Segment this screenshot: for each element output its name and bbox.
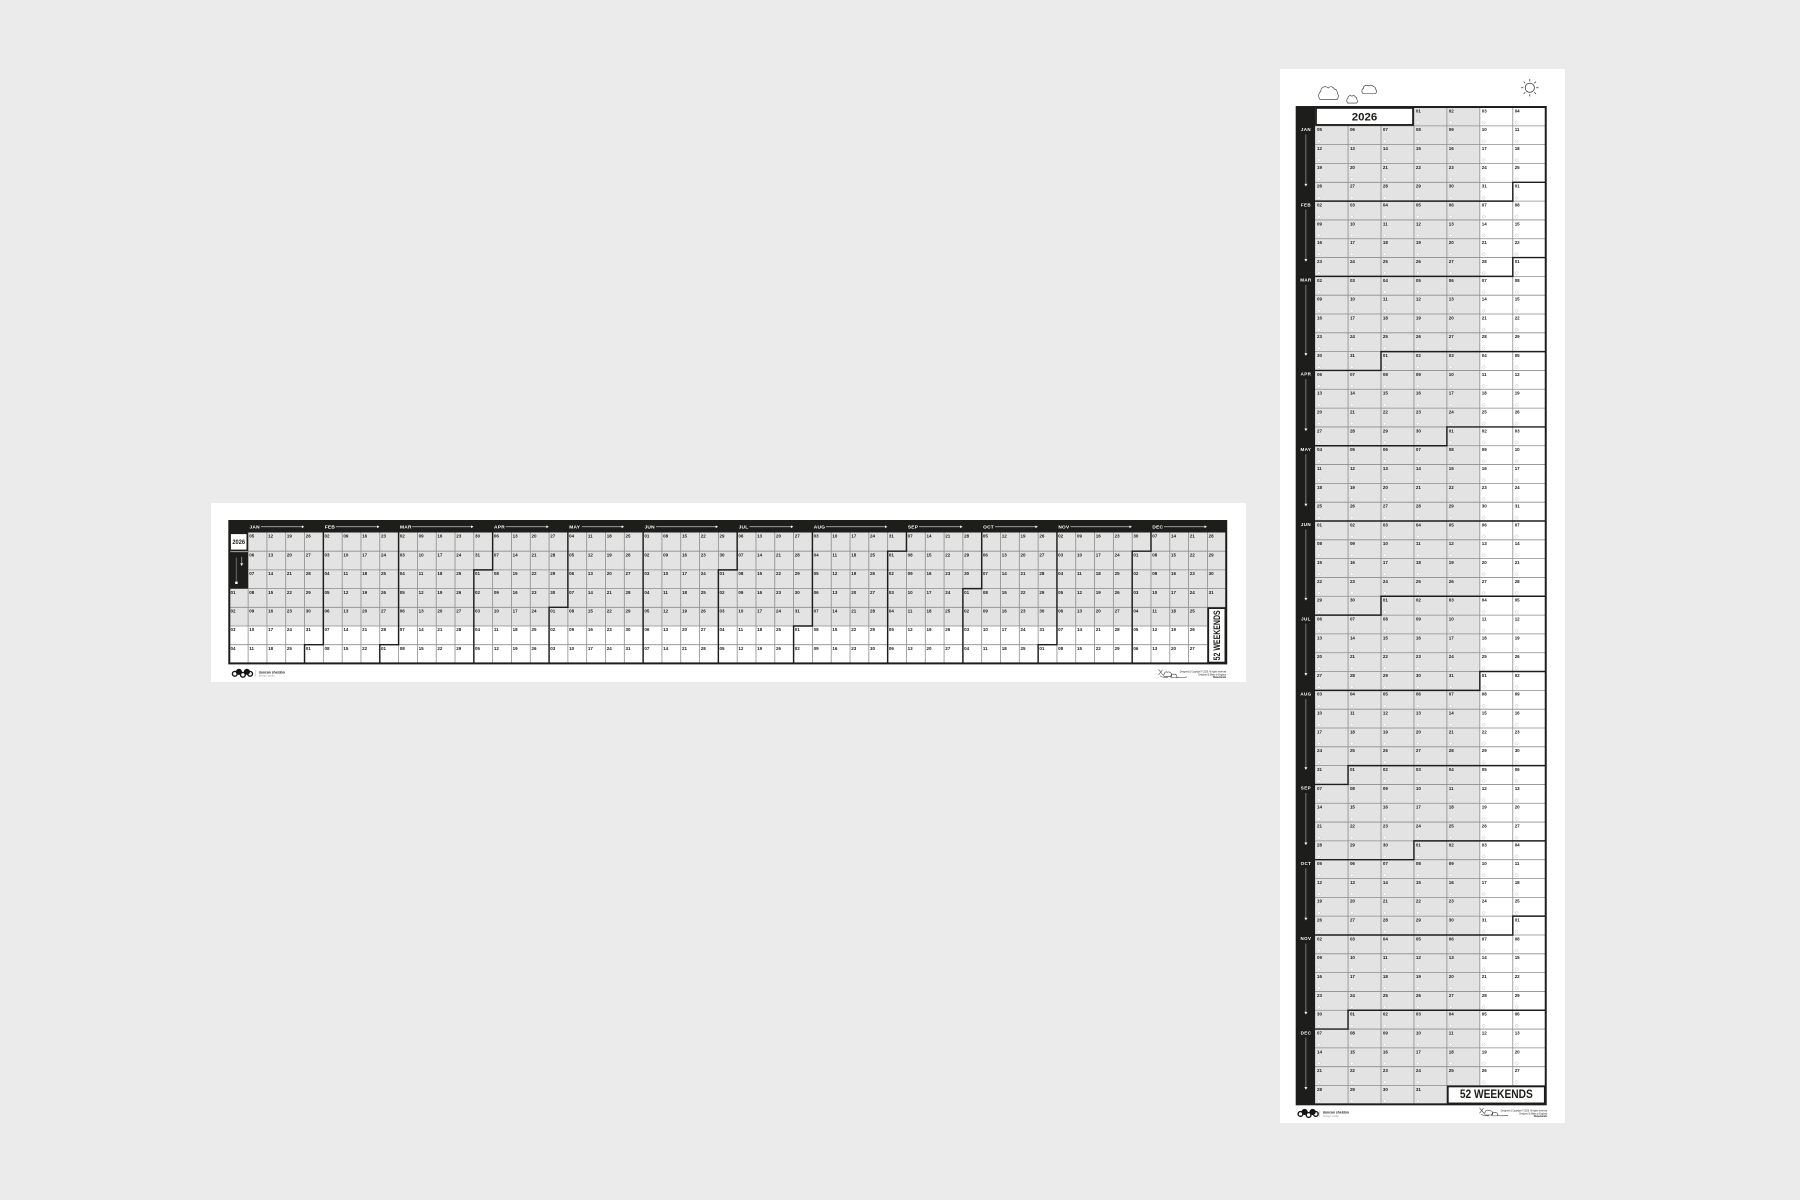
svg-text:17: 17 <box>268 627 274 632</box>
svg-text:10: 10 <box>738 609 744 614</box>
svg-text:21: 21 <box>682 646 688 651</box>
svg-text:07: 07 <box>1481 936 1486 941</box>
svg-text:25: 25 <box>1021 646 1027 651</box>
svg-text:03: 03 <box>644 571 650 576</box>
svg-text:JUL: JUL <box>1301 616 1311 621</box>
svg-text:11: 11 <box>1382 297 1387 302</box>
svg-text:25: 25 <box>945 609 951 614</box>
svg-text:30: 30 <box>1514 748 1519 753</box>
svg-text:21: 21 <box>851 609 857 614</box>
svg-text:16: 16 <box>1002 609 1008 614</box>
svg-text:09: 09 <box>983 609 989 614</box>
svg-text:23: 23 <box>531 590 537 595</box>
svg-text:19: 19 <box>362 590 368 595</box>
svg-text:11: 11 <box>1514 861 1519 866</box>
svg-text:10: 10 <box>419 552 425 557</box>
svg-text:10: 10 <box>1448 372 1453 377</box>
svg-text:11: 11 <box>419 571 424 576</box>
svg-text:11: 11 <box>832 552 837 557</box>
svg-text:28: 28 <box>1481 259 1486 264</box>
svg-text:16: 16 <box>1382 805 1387 810</box>
svg-text:10: 10 <box>569 646 575 651</box>
svg-text:09: 09 <box>1448 127 1453 132</box>
svg-text:29: 29 <box>550 571 556 576</box>
svg-text:22: 22 <box>1190 552 1196 557</box>
svg-text:01: 01 <box>1514 918 1519 923</box>
svg-text:24: 24 <box>1448 409 1453 414</box>
svg-text:25: 25 <box>626 534 632 539</box>
svg-text:18: 18 <box>851 552 857 557</box>
svg-text:03: 03 <box>1349 936 1354 941</box>
svg-text:07: 07 <box>1349 616 1354 621</box>
svg-text:MAR: MAR <box>400 525 412 531</box>
svg-text:01: 01 <box>1448 428 1453 433</box>
svg-text:11: 11 <box>663 590 668 595</box>
svg-text:09: 09 <box>663 552 669 557</box>
svg-text:30: 30 <box>1382 1087 1387 1092</box>
svg-text:12: 12 <box>1415 297 1420 302</box>
svg-text:09: 09 <box>738 590 744 595</box>
svg-text:26: 26 <box>1514 654 1519 659</box>
svg-text:07: 07 <box>569 590 575 595</box>
svg-text:09: 09 <box>569 627 575 632</box>
svg-text:28: 28 <box>1115 627 1121 632</box>
svg-text:19: 19 <box>1316 899 1321 904</box>
svg-text:10: 10 <box>1349 221 1354 226</box>
svg-text:18: 18 <box>513 627 519 632</box>
svg-text:11: 11 <box>738 627 743 632</box>
svg-text:08: 08 <box>1382 616 1387 621</box>
svg-text:03: 03 <box>475 609 481 614</box>
svg-text:06: 06 <box>1349 861 1354 866</box>
svg-text:25: 25 <box>1190 609 1196 614</box>
svg-text:29: 29 <box>1415 184 1420 189</box>
svg-text:22: 22 <box>1448 485 1453 490</box>
svg-text:12: 12 <box>1481 786 1486 791</box>
svg-text:09: 09 <box>249 609 255 614</box>
svg-text:07: 07 <box>1349 372 1354 377</box>
svg-text:21: 21 <box>437 627 443 632</box>
svg-text:31: 31 <box>1481 184 1486 189</box>
svg-text:09: 09 <box>1316 955 1321 960</box>
svg-text:23: 23 <box>1316 259 1321 264</box>
svg-text:02: 02 <box>325 534 331 539</box>
svg-text:21: 21 <box>1316 1068 1321 1073</box>
svg-text:09: 09 <box>343 534 349 539</box>
svg-text:01: 01 <box>795 627 801 632</box>
svg-text:12: 12 <box>1316 880 1321 885</box>
svg-text:08: 08 <box>1316 541 1321 546</box>
svg-text:08: 08 <box>1382 372 1387 377</box>
svg-text:24: 24 <box>1190 590 1196 595</box>
svg-text:21: 21 <box>287 571 293 576</box>
svg-text:29: 29 <box>456 646 462 651</box>
svg-text:29: 29 <box>1514 334 1519 339</box>
svg-text:16: 16 <box>1316 974 1321 979</box>
svg-text:20: 20 <box>851 590 857 595</box>
svg-text:SEP: SEP <box>908 525 919 531</box>
svg-text:15: 15 <box>1382 635 1387 640</box>
svg-text:NOV: NOV <box>1058 525 1070 531</box>
svg-text:01: 01 <box>1415 842 1420 847</box>
svg-text:06: 06 <box>738 534 744 539</box>
svg-text:14: 14 <box>1382 146 1387 151</box>
svg-text:21: 21 <box>531 552 537 557</box>
svg-text:DEC: DEC <box>1152 525 1163 531</box>
svg-text:25: 25 <box>1514 165 1519 170</box>
svg-text:18: 18 <box>1382 240 1387 245</box>
svg-text:24: 24 <box>1514 485 1519 490</box>
svg-text:12: 12 <box>908 627 914 632</box>
svg-text:21: 21 <box>1448 729 1453 734</box>
svg-text:15: 15 <box>832 627 838 632</box>
svg-text:23: 23 <box>1448 899 1453 904</box>
svg-text:16: 16 <box>1514 711 1519 716</box>
svg-text:10: 10 <box>1481 127 1486 132</box>
svg-text:15: 15 <box>1415 880 1420 885</box>
svg-text:04: 04 <box>1382 203 1387 208</box>
svg-text:20: 20 <box>531 534 537 539</box>
svg-text:24: 24 <box>870 534 876 539</box>
svg-text:13: 13 <box>1349 146 1354 151</box>
svg-text:25: 25 <box>1448 1068 1453 1073</box>
svg-text:01: 01 <box>1349 767 1354 772</box>
svg-text:29: 29 <box>1382 673 1387 678</box>
svg-text:03: 03 <box>1349 278 1354 283</box>
svg-text:09: 09 <box>908 571 914 576</box>
svg-text:14: 14 <box>588 590 594 595</box>
svg-text:13: 13 <box>1152 646 1158 651</box>
svg-text:08: 08 <box>1415 127 1420 132</box>
svg-text:08: 08 <box>569 609 575 614</box>
svg-text:21: 21 <box>1514 560 1519 565</box>
svg-text:14: 14 <box>1415 466 1420 471</box>
svg-text:NOV: NOV <box>1300 936 1311 941</box>
svg-text:07: 07 <box>1152 534 1158 539</box>
svg-text:23: 23 <box>287 609 293 614</box>
svg-text:52 WEEKENDS: 52 WEEKENDS <box>1212 610 1223 660</box>
svg-text:19: 19 <box>1448 560 1453 565</box>
svg-text:01: 01 <box>1481 673 1486 678</box>
svg-text:11: 11 <box>1481 616 1486 621</box>
svg-text:05: 05 <box>1415 278 1420 283</box>
svg-text:28: 28 <box>550 552 556 557</box>
svg-text:13: 13 <box>1448 297 1453 302</box>
svg-text:14: 14 <box>663 646 669 651</box>
svg-text:21: 21 <box>1021 571 1027 576</box>
svg-text:MAY: MAY <box>1300 447 1311 452</box>
svg-text:02: 02 <box>795 646 801 651</box>
svg-text:28: 28 <box>1382 918 1387 923</box>
svg-text:03: 03 <box>964 627 970 632</box>
svg-text:04: 04 <box>889 609 895 614</box>
svg-text:14: 14 <box>1514 541 1519 546</box>
svg-text:15: 15 <box>419 646 425 651</box>
svg-text:30: 30 <box>1039 609 1045 614</box>
svg-text:18: 18 <box>1002 646 1008 651</box>
svg-text:18: 18 <box>607 534 613 539</box>
svg-text:17: 17 <box>1481 146 1486 151</box>
svg-text:08: 08 <box>1514 936 1519 941</box>
svg-text:14: 14 <box>1002 571 1008 576</box>
svg-text:06: 06 <box>1133 646 1139 651</box>
svg-text:30: 30 <box>1415 673 1420 678</box>
svg-text:JAN: JAN <box>1300 127 1310 132</box>
svg-text:23: 23 <box>701 552 707 557</box>
svg-text:07: 07 <box>1382 861 1387 866</box>
svg-text:24: 24 <box>607 646 613 651</box>
svg-text:29: 29 <box>1115 646 1121 651</box>
svg-text:05: 05 <box>400 590 406 595</box>
svg-text:07: 07 <box>494 552 500 557</box>
svg-text:28: 28 <box>1481 334 1486 339</box>
svg-text:05: 05 <box>814 571 820 576</box>
svg-text:23: 23 <box>1316 993 1321 998</box>
svg-text:21: 21 <box>1349 409 1354 414</box>
svg-text:52 WEEKENDS: 52 WEEKENDS <box>1459 1087 1532 1101</box>
svg-text:16: 16 <box>1171 571 1177 576</box>
svg-text:15: 15 <box>1349 1049 1354 1054</box>
svg-text:29: 29 <box>1481 748 1486 753</box>
svg-text:06: 06 <box>1382 447 1387 452</box>
svg-text:07: 07 <box>1481 203 1486 208</box>
svg-text:25: 25 <box>1382 259 1387 264</box>
svg-text:25: 25 <box>1481 409 1486 414</box>
svg-text:05: 05 <box>1481 767 1486 772</box>
svg-text:APR: APR <box>494 525 505 531</box>
svg-text:02: 02 <box>1481 428 1486 433</box>
svg-text:10: 10 <box>832 534 838 539</box>
svg-text:07: 07 <box>814 609 820 614</box>
svg-text:JUL: JUL <box>739 525 749 531</box>
svg-text:02: 02 <box>475 590 481 595</box>
svg-text:14: 14 <box>513 552 519 557</box>
svg-text:12: 12 <box>1415 221 1420 226</box>
svg-text:14: 14 <box>419 627 425 632</box>
svg-text:06: 06 <box>889 646 895 651</box>
svg-text:03: 03 <box>1514 428 1519 433</box>
svg-text:26: 26 <box>1190 627 1196 632</box>
svg-text:21: 21 <box>1190 534 1196 539</box>
svg-text:22: 22 <box>1514 974 1519 979</box>
svg-text:01: 01 <box>964 590 970 595</box>
svg-text:21: 21 <box>607 590 613 595</box>
svg-text:27: 27 <box>1316 428 1321 433</box>
svg-text:14: 14 <box>1349 635 1354 640</box>
svg-text:18: 18 <box>926 609 932 614</box>
svg-text:OCT: OCT <box>1300 861 1311 866</box>
svg-text:16: 16 <box>1415 391 1420 396</box>
svg-text:26: 26 <box>701 609 707 614</box>
svg-text:13: 13 <box>1448 221 1453 226</box>
svg-text:17: 17 <box>926 590 932 595</box>
svg-text:30: 30 <box>1349 598 1354 603</box>
svg-text:26: 26 <box>381 590 387 595</box>
svg-text:06: 06 <box>1058 609 1064 614</box>
svg-text:20: 20 <box>1316 654 1321 659</box>
svg-text:02: 02 <box>1316 278 1321 283</box>
svg-text:03: 03 <box>814 534 820 539</box>
svg-text:09: 09 <box>1382 1030 1387 1035</box>
svg-text:22: 22 <box>1514 240 1519 245</box>
svg-text:22: 22 <box>287 590 293 595</box>
svg-text:07: 07 <box>1316 786 1321 791</box>
svg-text:22: 22 <box>701 534 707 539</box>
svg-text:16: 16 <box>832 646 838 651</box>
svg-text:17: 17 <box>588 646 594 651</box>
svg-text:21: 21 <box>362 627 368 632</box>
svg-text:27: 27 <box>1415 748 1420 753</box>
svg-text:20: 20 <box>1349 899 1354 904</box>
svg-text:24: 24 <box>1349 334 1354 339</box>
svg-text:10: 10 <box>1077 552 1083 557</box>
svg-text:06: 06 <box>1448 203 1453 208</box>
svg-text:18: 18 <box>437 571 443 576</box>
svg-text:09: 09 <box>1481 447 1486 452</box>
svg-text:29: 29 <box>1514 993 1519 998</box>
svg-text:13: 13 <box>1002 552 1008 557</box>
svg-text:11: 11 <box>1316 466 1321 471</box>
svg-text:11: 11 <box>1514 127 1519 132</box>
svg-text:04: 04 <box>1481 598 1486 603</box>
svg-text:28: 28 <box>795 552 801 557</box>
svg-text:10: 10 <box>1152 590 1158 595</box>
svg-text:25: 25 <box>701 590 707 595</box>
svg-text:17: 17 <box>1002 627 1008 632</box>
svg-text:03: 03 <box>400 552 406 557</box>
svg-text:09: 09 <box>494 590 500 595</box>
svg-text:25: 25 <box>1415 579 1420 584</box>
svg-text:09: 09 <box>1415 372 1420 377</box>
svg-text:27: 27 <box>626 571 632 576</box>
svg-text:15: 15 <box>1514 955 1519 960</box>
svg-text:31: 31 <box>1209 590 1215 595</box>
svg-text:03: 03 <box>1448 598 1453 603</box>
svg-text:11: 11 <box>1448 1030 1453 1035</box>
svg-text:16: 16 <box>1448 146 1453 151</box>
svg-text:16: 16 <box>362 534 368 539</box>
svg-text:26: 26 <box>1448 579 1453 584</box>
svg-text:07: 07 <box>983 571 989 576</box>
svg-text:14: 14 <box>1077 627 1083 632</box>
svg-text:25: 25 <box>1316 504 1321 509</box>
svg-text:02: 02 <box>1382 1012 1387 1017</box>
svg-text:20: 20 <box>287 552 293 557</box>
svg-text:12: 12 <box>1002 534 1008 539</box>
svg-text:JUN: JUN <box>645 525 656 531</box>
svg-text:11: 11 <box>1382 955 1387 960</box>
svg-text:22: 22 <box>1415 899 1420 904</box>
svg-text:30: 30 <box>626 627 632 632</box>
svg-text:27: 27 <box>1190 646 1196 651</box>
svg-text:08: 08 <box>1152 552 1158 557</box>
svg-text:05: 05 <box>1316 127 1321 132</box>
svg-text:03: 03 <box>1481 842 1486 847</box>
svg-text:14: 14 <box>1448 711 1453 716</box>
svg-text:29: 29 <box>1349 842 1354 847</box>
svg-text:15: 15 <box>343 646 349 651</box>
svg-text:10: 10 <box>1514 447 1519 452</box>
svg-text:06: 06 <box>983 552 989 557</box>
svg-text:06: 06 <box>1448 936 1453 941</box>
svg-text:06: 06 <box>814 590 820 595</box>
svg-text:11: 11 <box>983 646 988 651</box>
svg-text:08: 08 <box>814 627 820 632</box>
svg-text:20: 20 <box>1021 552 1027 557</box>
svg-text:16: 16 <box>588 627 594 632</box>
svg-text:28: 28 <box>964 534 970 539</box>
svg-text:29: 29 <box>1448 504 1453 509</box>
svg-text:2026: 2026 <box>232 539 245 546</box>
svg-text:13: 13 <box>832 590 838 595</box>
svg-text:26: 26 <box>1349 504 1354 509</box>
svg-text:15: 15 <box>1002 590 1008 595</box>
svg-text:17: 17 <box>757 609 763 614</box>
svg-text:20: 20 <box>1349 165 1354 170</box>
svg-text:27: 27 <box>306 552 312 557</box>
svg-text:07: 07 <box>325 627 331 632</box>
svg-text:04: 04 <box>1448 767 1453 772</box>
svg-text:23: 23 <box>1382 1068 1387 1073</box>
svg-text:23: 23 <box>607 627 613 632</box>
svg-text:13: 13 <box>1481 541 1486 546</box>
svg-text:12: 12 <box>268 534 274 539</box>
svg-text:20: 20 <box>682 627 688 632</box>
svg-text:15: 15 <box>1415 146 1420 151</box>
svg-text:30: 30 <box>1415 428 1420 433</box>
svg-text:02: 02 <box>550 627 556 632</box>
svg-text:18: 18 <box>362 571 368 576</box>
svg-text:23: 23 <box>1415 409 1420 414</box>
svg-text:31: 31 <box>1514 504 1519 509</box>
svg-text:20: 20 <box>607 571 613 576</box>
svg-text:17: 17 <box>1514 466 1519 471</box>
svg-text:29: 29 <box>1209 552 1215 557</box>
svg-text:30: 30 <box>1209 571 1215 576</box>
svg-text:08: 08 <box>1349 1030 1354 1035</box>
svg-text:08: 08 <box>1514 278 1519 283</box>
svg-text:28: 28 <box>870 609 876 614</box>
svg-text:04: 04 <box>1058 571 1064 576</box>
svg-text:12: 12 <box>1448 541 1453 546</box>
svg-text:09: 09 <box>1152 571 1158 576</box>
svg-text:21: 21 <box>1481 974 1486 979</box>
svg-text:28: 28 <box>1448 748 1453 753</box>
svg-text:26: 26 <box>776 646 782 651</box>
svg-text:24: 24 <box>1349 993 1354 998</box>
svg-text:15: 15 <box>268 590 274 595</box>
svg-text:APR: APR <box>1300 372 1311 377</box>
svg-text:07: 07 <box>1481 278 1486 283</box>
svg-text:15: 15 <box>926 552 932 557</box>
svg-text:04: 04 <box>231 646 237 651</box>
svg-text:23: 23 <box>776 590 782 595</box>
svg-text:10: 10 <box>1382 541 1387 546</box>
svg-text:09: 09 <box>1077 534 1083 539</box>
svg-text:15: 15 <box>1171 552 1177 557</box>
svg-text:18: 18 <box>268 646 274 651</box>
svg-text:19: 19 <box>1514 635 1519 640</box>
svg-text:06: 06 <box>1448 278 1453 283</box>
svg-text:02: 02 <box>1058 534 1064 539</box>
svg-text:04: 04 <box>569 534 575 539</box>
svg-text:05: 05 <box>325 590 331 595</box>
svg-text:22: 22 <box>851 627 857 632</box>
svg-text:14: 14 <box>1316 1049 1321 1054</box>
svg-text:04: 04 <box>1133 609 1139 614</box>
svg-text:24: 24 <box>1316 748 1321 753</box>
svg-text:14: 14 <box>1316 805 1321 810</box>
